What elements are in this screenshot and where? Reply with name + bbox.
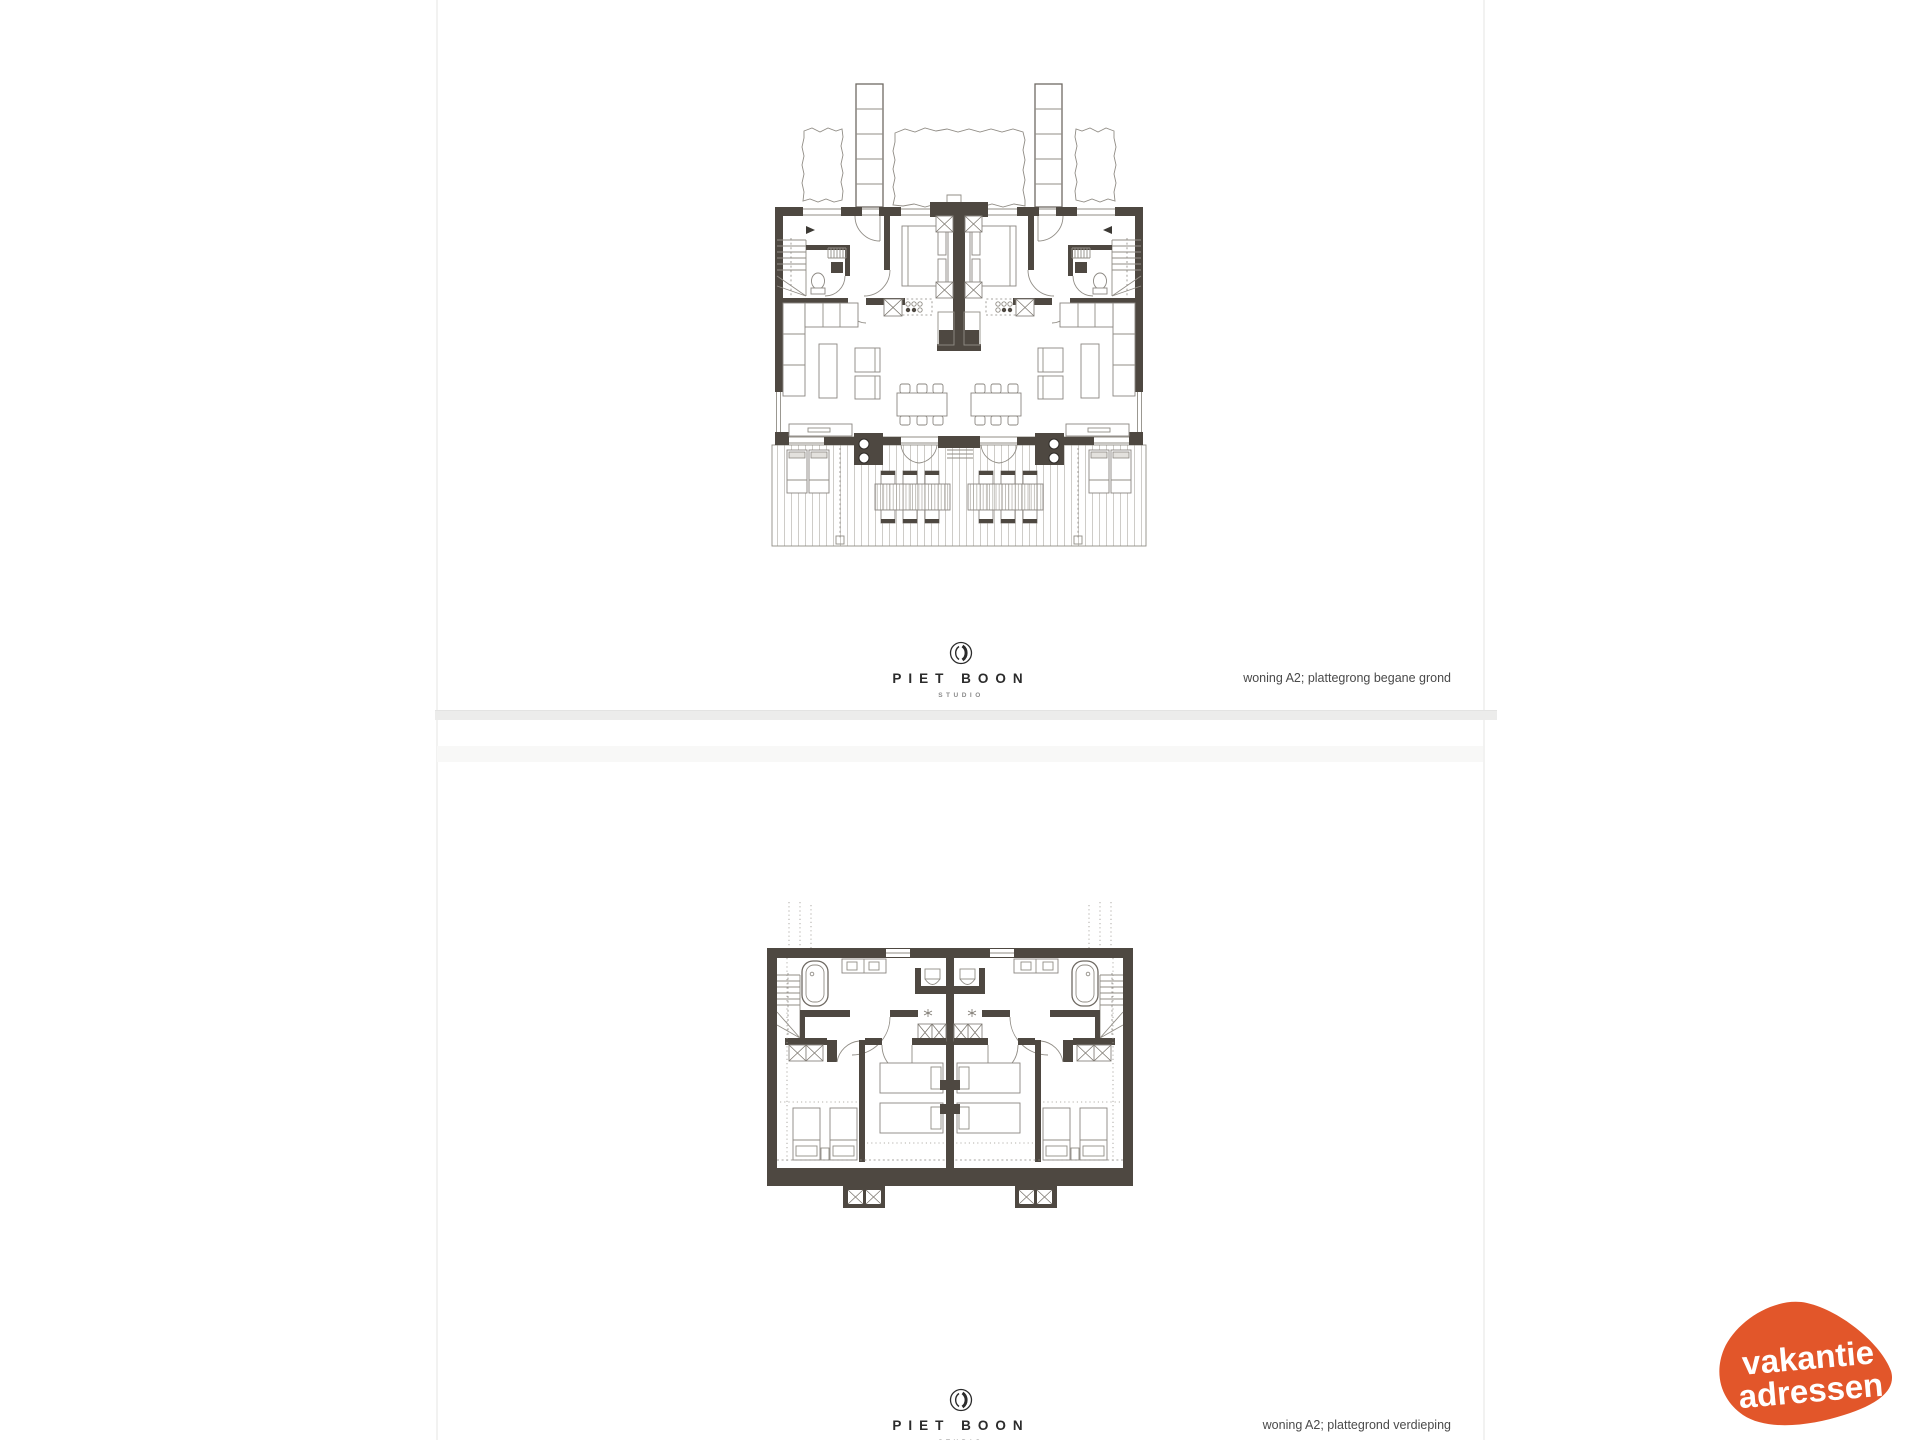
piet-boon-studio-label: STUDIO bbox=[851, 692, 1071, 699]
piet-boon-logo: PIET BOON STUDIO bbox=[851, 641, 1071, 699]
plan-caption-ground-floor: woning A2; plattegrong begane grond bbox=[1243, 671, 1451, 685]
shared-structure bbox=[767, 948, 1133, 1186]
vakantieadressen-text: vakantie adressen bbox=[1734, 1333, 1884, 1415]
piet-boon-logo: PIET BOON STUDIO bbox=[851, 1388, 1071, 1440]
vakantieadressen-logo[interactable]: vakantie adressen bbox=[1710, 1295, 1910, 1440]
scan-artifact-strip bbox=[437, 746, 1483, 762]
right-dwelling-unit bbox=[950, 902, 1133, 1208]
piet-boon-mark-icon bbox=[949, 1388, 973, 1412]
page-divider-strip bbox=[435, 710, 1497, 720]
piet-boon-mark-icon bbox=[949, 641, 973, 665]
screenshot-canvas: PIET BOON STUDIO woning A2; plattegrong … bbox=[0, 0, 1920, 1440]
plan-caption-first-floor: woning A2; plattegrond verdieping bbox=[1263, 1418, 1451, 1432]
left-dwelling-unit bbox=[767, 902, 950, 1208]
center-planting-bed bbox=[893, 128, 1025, 207]
ground-floor-plan-drawing bbox=[700, 70, 1220, 570]
page-right-edge bbox=[1483, 0, 1485, 1440]
first-floor-plan-drawing bbox=[700, 890, 1220, 1220]
page-left-edge bbox=[436, 0, 438, 1440]
piet-boon-wordmark: PIET BOON bbox=[851, 671, 1071, 686]
shared-structure bbox=[775, 128, 1143, 458]
piet-boon-wordmark: PIET BOON bbox=[851, 1418, 1071, 1433]
